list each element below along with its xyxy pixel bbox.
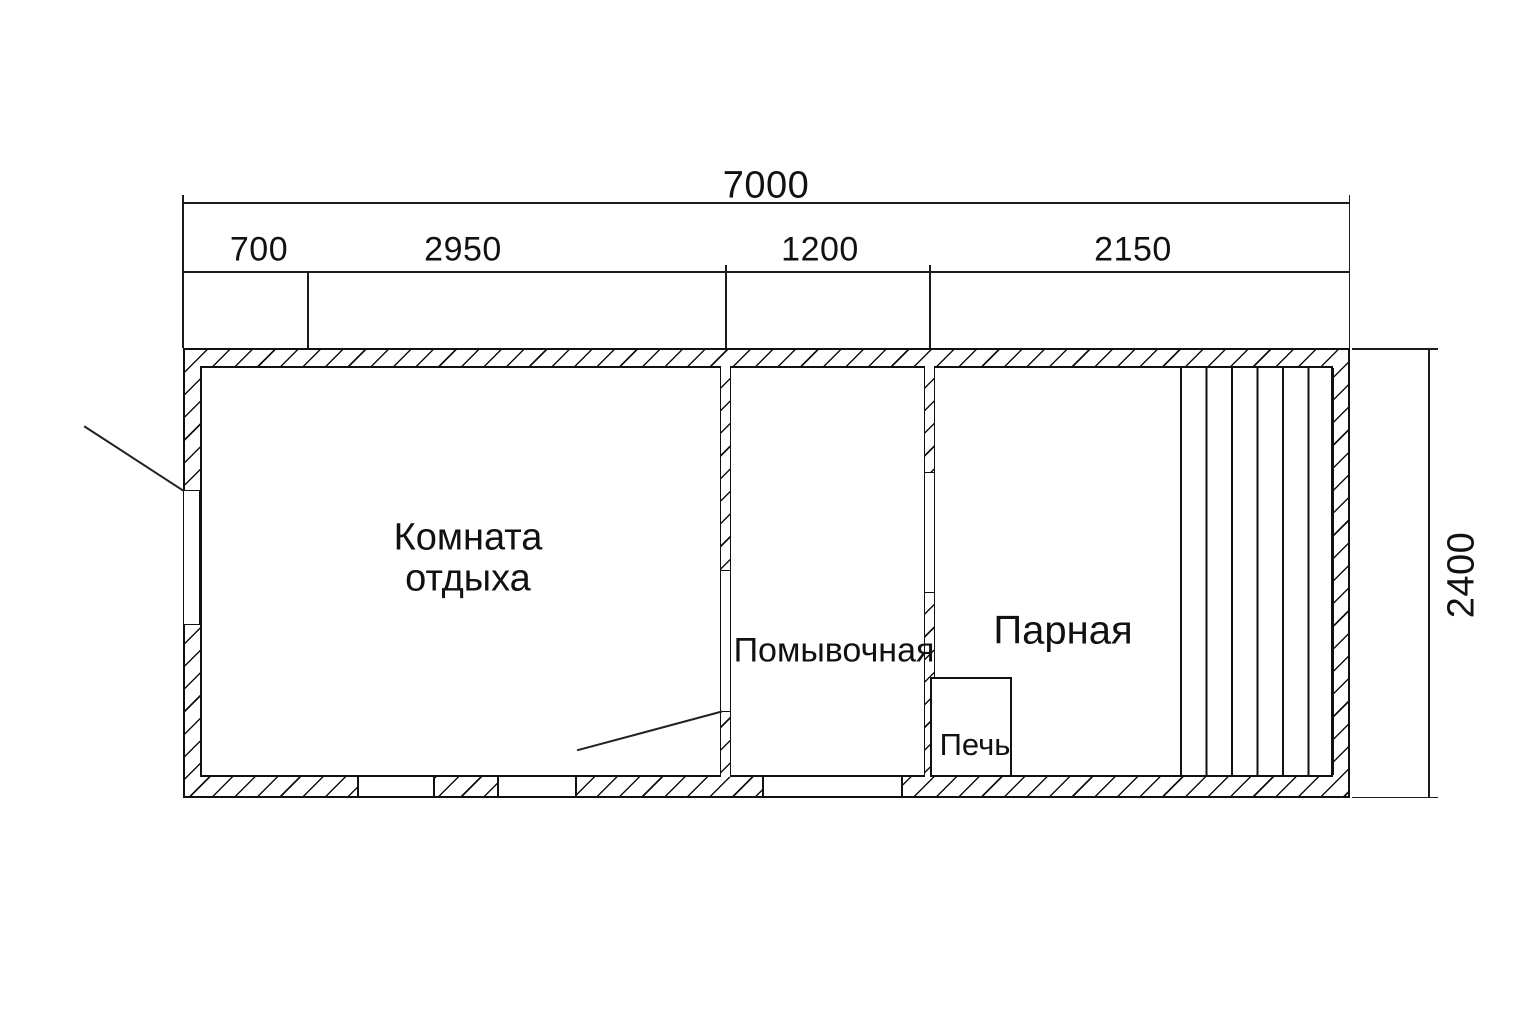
extension-line-height-top: [1352, 348, 1438, 350]
dim-label-total-width: 7000: [723, 165, 810, 208]
room-label-stove: Печь: [940, 727, 1011, 763]
entrance-door-opening: [183, 490, 200, 625]
dim-label-700: 700: [230, 231, 288, 270]
entrance-door-swing-line: [84, 426, 184, 492]
extension-line-left: [182, 195, 184, 348]
room-label-rest-line2: отдыха: [405, 558, 531, 601]
room-label-wash: Помывочная: [734, 632, 935, 671]
window-opening-1: [357, 775, 435, 798]
dim-label-1200: 1200: [781, 231, 859, 270]
bench-slats: [1180, 368, 1334, 775]
extension-line-700: [307, 271, 309, 348]
floor-plan-canvas: 7000 700 2950 1200 2150 2400 Комната отд…: [0, 0, 1536, 1024]
dim-label-2150: 2150: [1094, 231, 1172, 270]
dim-label-height: 2400: [1441, 532, 1484, 619]
dim-label-2950: 2950: [424, 231, 502, 270]
door-opening-wash-steam: [924, 472, 935, 593]
dim-line-height: [1428, 349, 1430, 798]
door-opening-rest-wash: [720, 570, 731, 712]
room-label-rest-line1: Комната: [394, 517, 543, 560]
room-label-steam: Парная: [993, 609, 1132, 654]
extension-line-height-bottom: [1352, 797, 1438, 799]
extension-line-right: [1349, 195, 1351, 348]
dim-line-segments: [183, 271, 1350, 273]
window-opening-3: [762, 775, 903, 798]
window-opening-2: [497, 775, 577, 798]
interior-floor-area: [200, 366, 1333, 777]
